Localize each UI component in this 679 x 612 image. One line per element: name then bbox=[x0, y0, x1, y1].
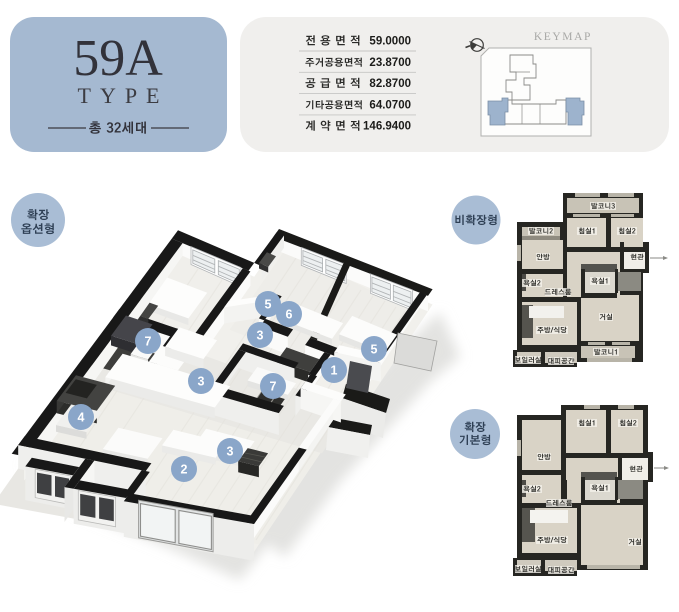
svg-text:TYPE: TYPE bbox=[78, 83, 169, 108]
svg-text:3: 3 bbox=[198, 375, 205, 389]
svg-text:3: 3 bbox=[257, 329, 264, 343]
svg-text:1: 1 bbox=[331, 364, 338, 378]
svg-text:5: 5 bbox=[371, 343, 378, 357]
svg-text:7: 7 bbox=[270, 380, 277, 394]
svg-text:59A: 59A bbox=[73, 30, 163, 87]
svg-text:3: 3 bbox=[227, 445, 234, 459]
svg-text:64.0700: 64.0700 bbox=[369, 99, 411, 111]
svg-text:6: 6 bbox=[286, 308, 293, 322]
svg-text:59.0000: 59.0000 bbox=[369, 36, 411, 48]
svg-text:KEYMAP: KEYMAP bbox=[534, 31, 592, 43]
svg-text:23.8700: 23.8700 bbox=[369, 57, 411, 69]
svg-text:4: 4 bbox=[78, 411, 85, 425]
svg-text:5: 5 bbox=[265, 298, 272, 312]
svg-text:2: 2 bbox=[181, 463, 188, 477]
svg-text:82.8700: 82.8700 bbox=[369, 78, 411, 90]
svg-text:7: 7 bbox=[145, 335, 152, 349]
svg-text:146.9400: 146.9400 bbox=[363, 121, 411, 133]
